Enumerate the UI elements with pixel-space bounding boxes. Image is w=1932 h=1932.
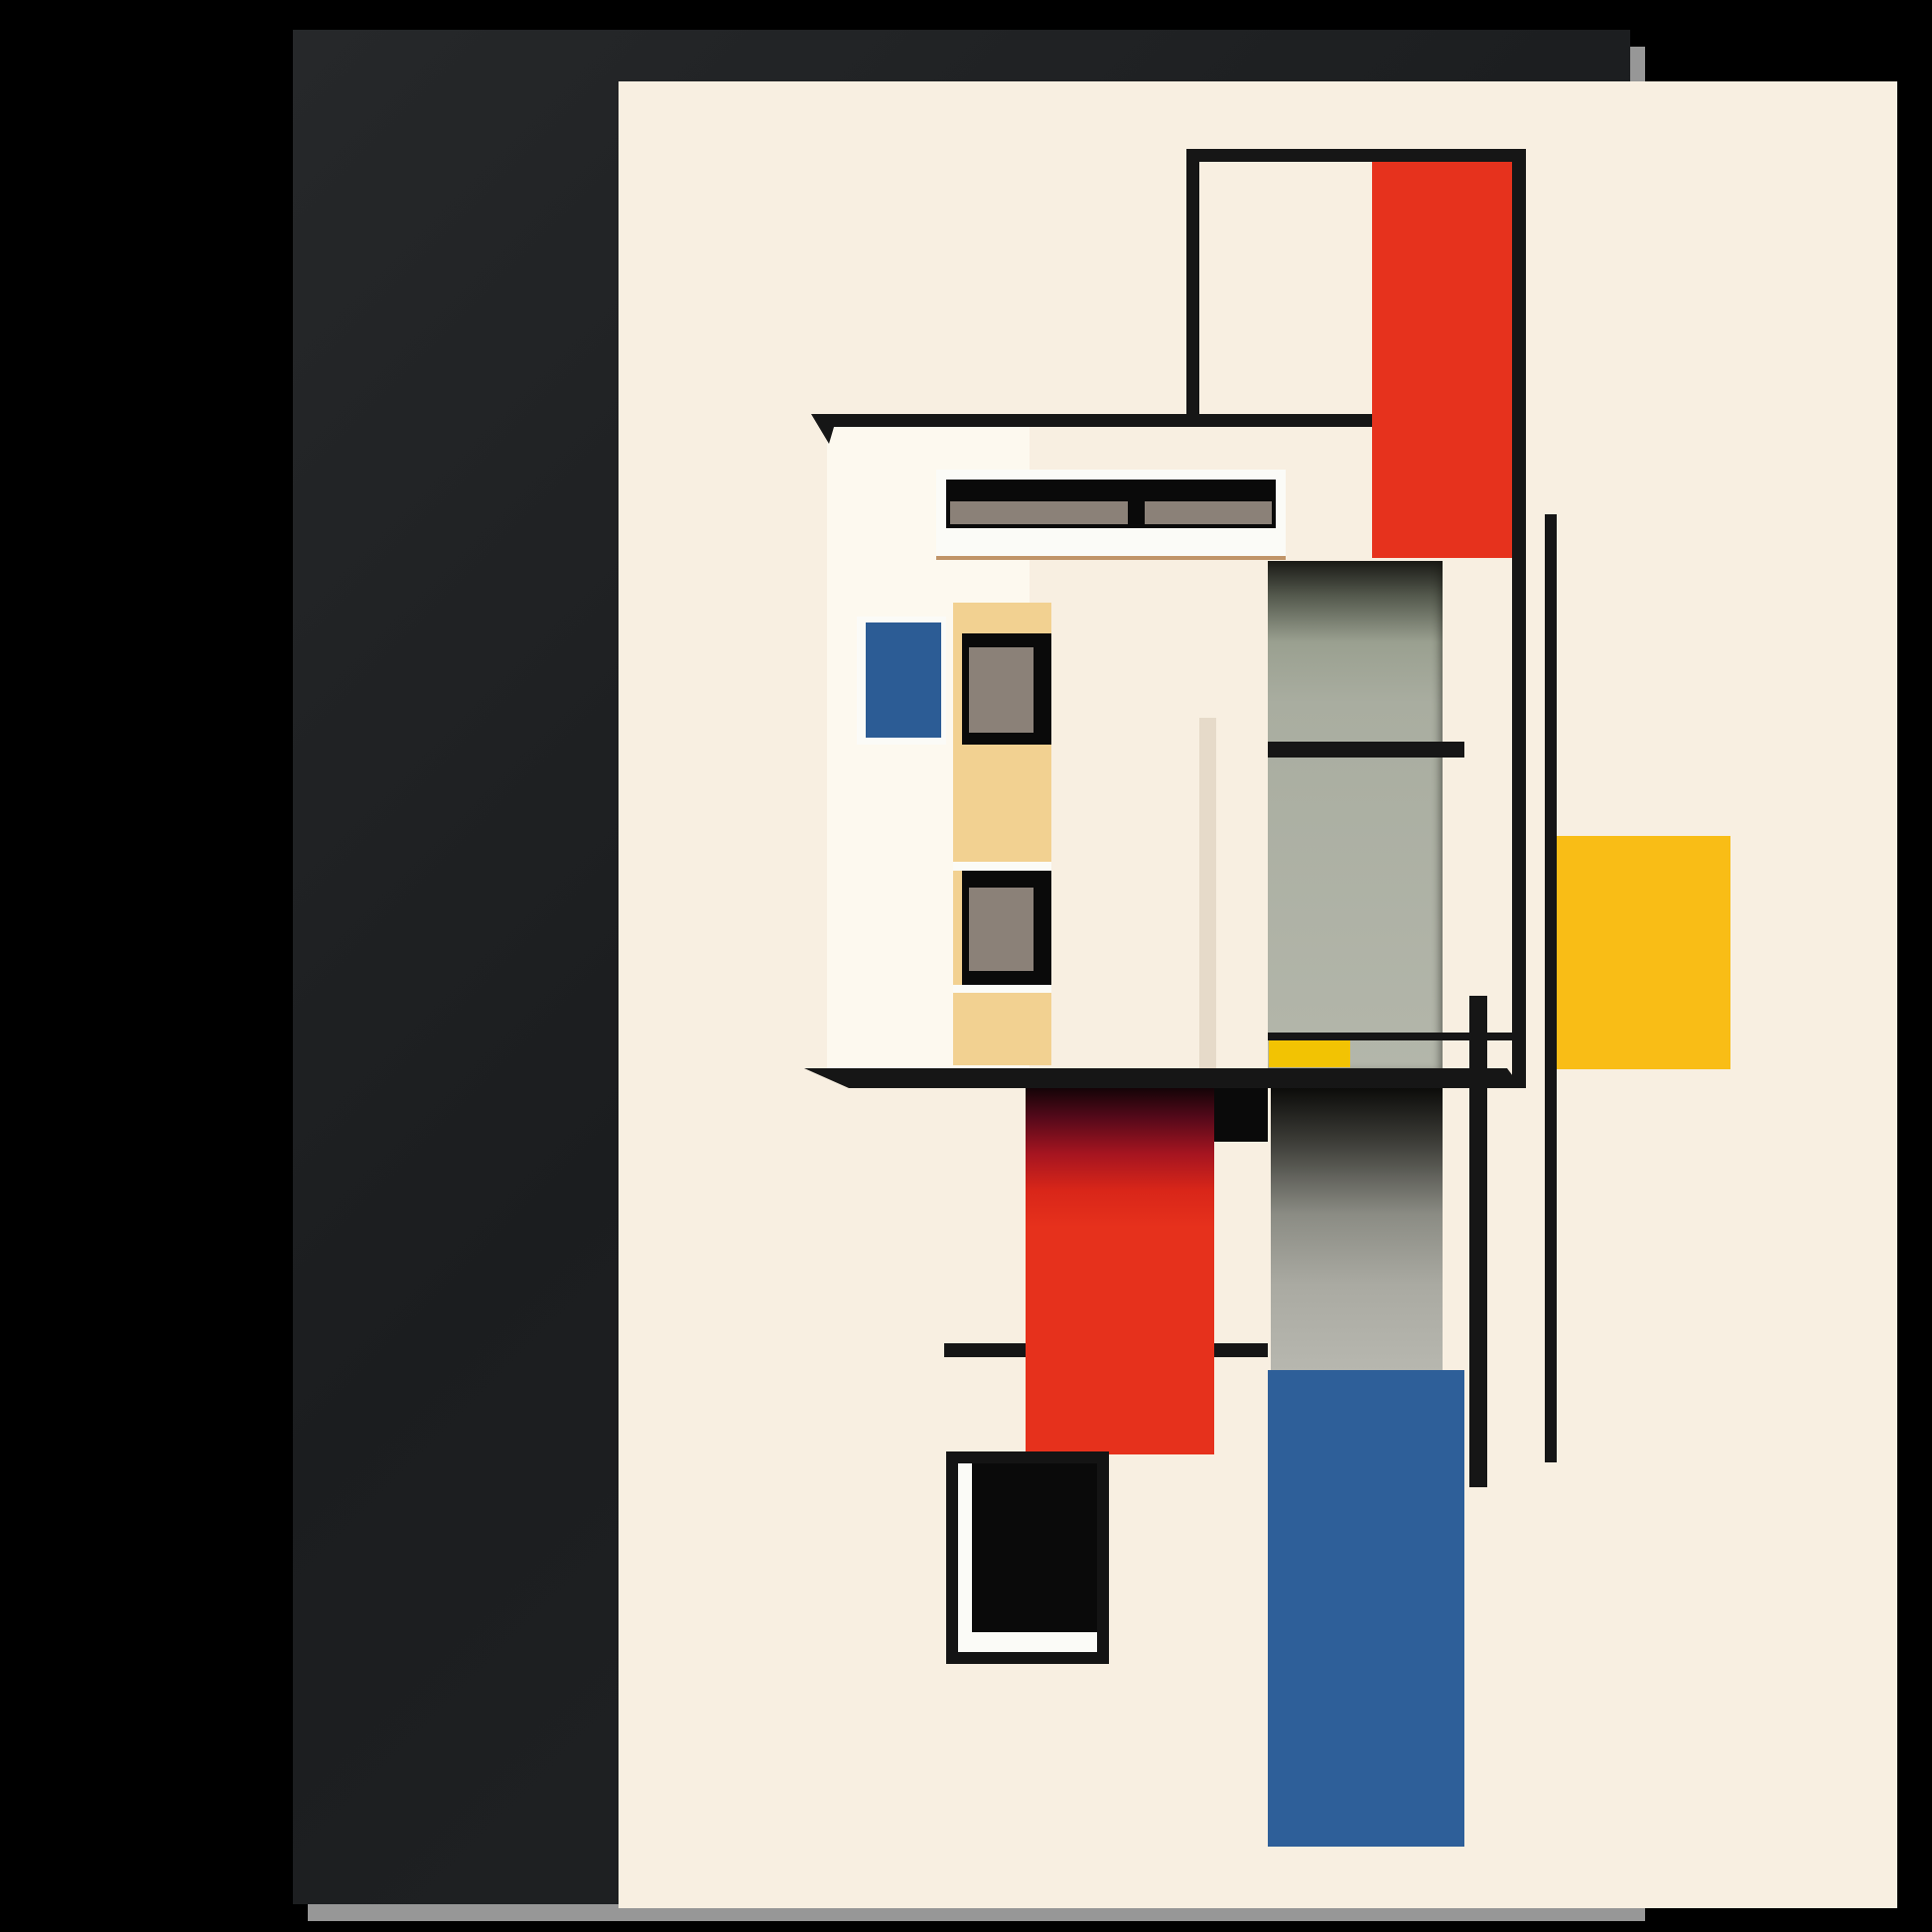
outline-rect-left-stroke	[1186, 149, 1199, 427]
poster-canvas	[619, 81, 1897, 1908]
balcony-ledge	[804, 1068, 1522, 1088]
black-square-solid-block	[972, 1463, 1097, 1632]
large-yellow-square	[1557, 836, 1730, 1069]
red-rectangle-top	[1372, 156, 1512, 558]
wall-shadow-strip	[1199, 718, 1216, 1068]
black-open-frame-square	[946, 1451, 1109, 1664]
clerestory-sill-line	[936, 556, 1286, 560]
outline-rect-top-stroke	[1186, 149, 1526, 162]
clerestory-pane-left	[950, 501, 1128, 524]
picture-frame	[293, 30, 1630, 1904]
vertical-line-c	[1545, 514, 1557, 1462]
clerestory-pane-right	[1145, 501, 1272, 524]
thin-rail-line	[1268, 1033, 1524, 1040]
dark-window-upper-pane	[969, 647, 1034, 733]
vertical-line-a	[1512, 149, 1526, 1088]
product-backdrop	[0, 0, 1932, 1932]
gray-column-lower	[1271, 1088, 1443, 1370]
under-ledge-black-bar	[1214, 1088, 1268, 1142]
dark-window-lower-pane	[969, 888, 1034, 971]
blue-window-square	[866, 622, 941, 738]
panel-cross-bar	[1268, 742, 1464, 758]
side-rail-right-segment	[1214, 1343, 1268, 1357]
window-gap-lower	[953, 985, 1051, 993]
side-rail-left-segment	[944, 1343, 1026, 1357]
blue-column-lower	[1268, 1370, 1464, 1847]
window-gap-upper	[953, 862, 1051, 871]
recessed-gray-panel	[1268, 561, 1443, 1068]
black-square-white-inset	[958, 1463, 1097, 1652]
red-column-lower	[1026, 1088, 1214, 1454]
